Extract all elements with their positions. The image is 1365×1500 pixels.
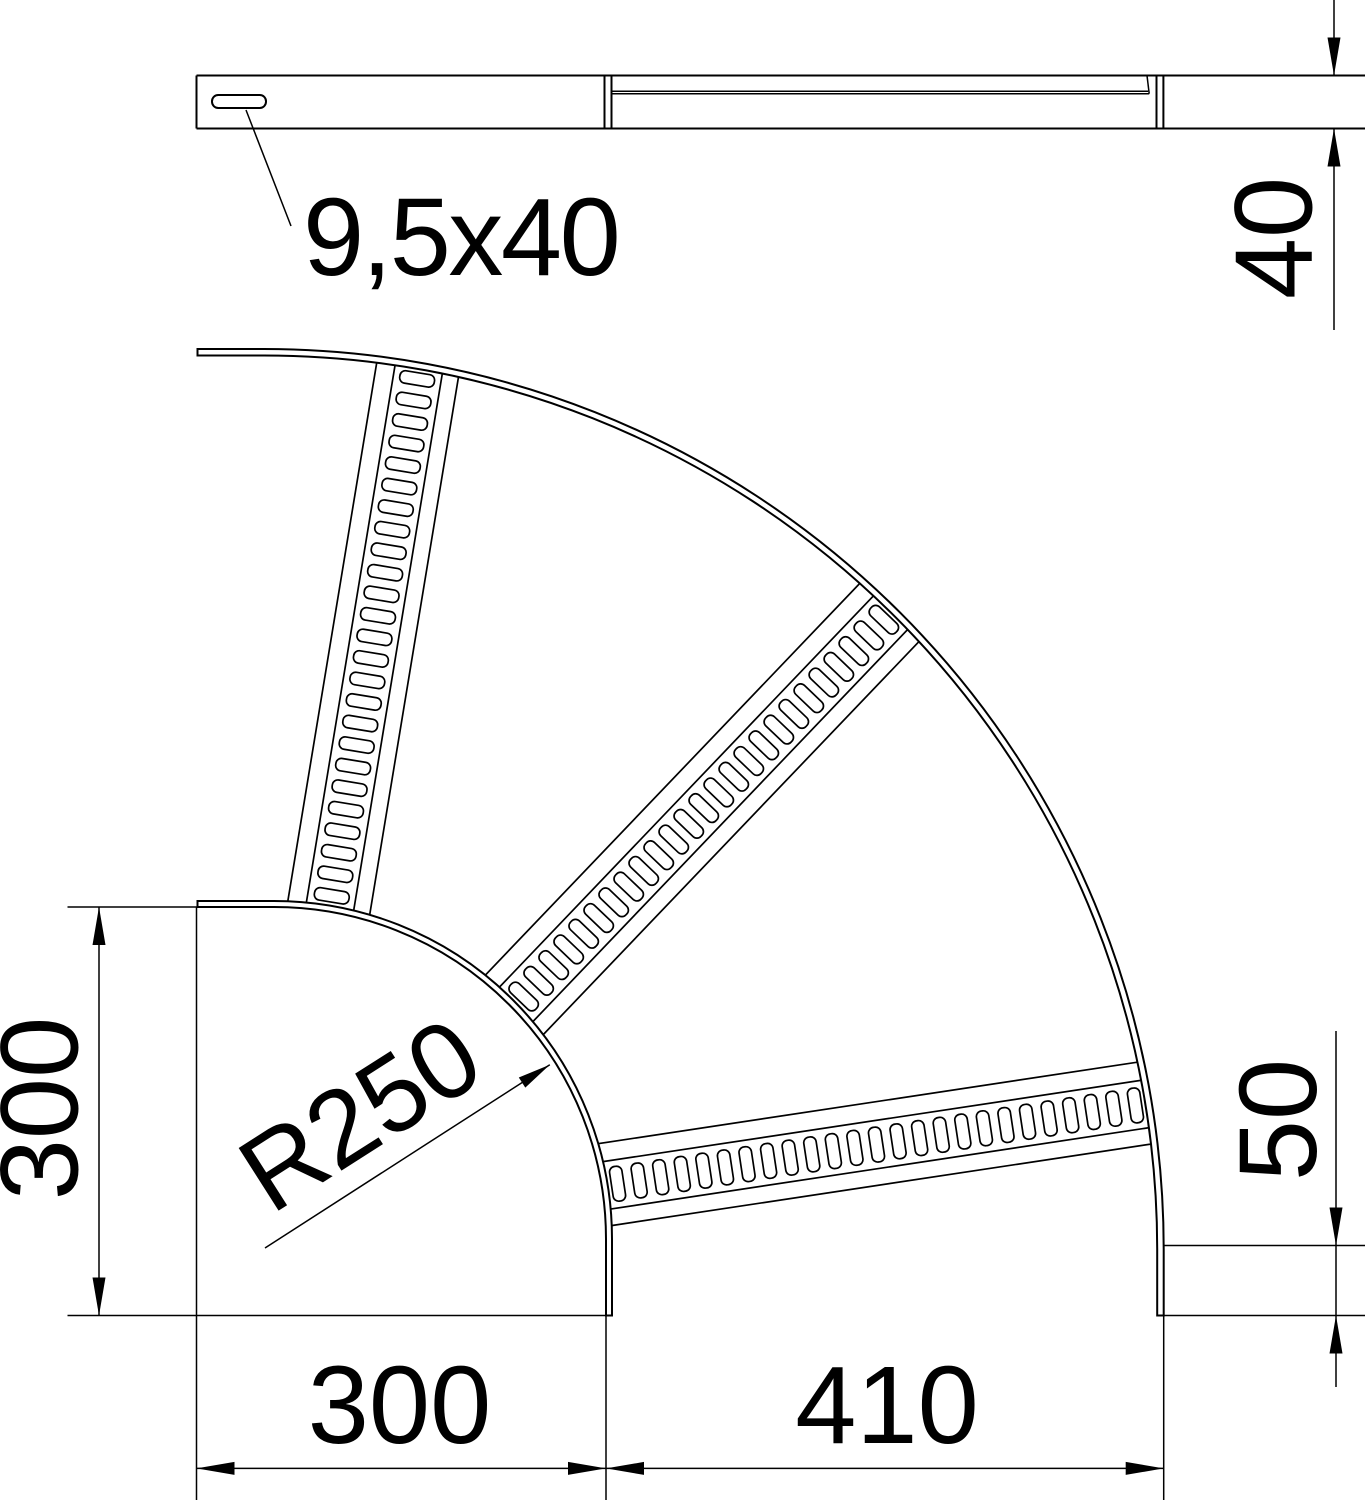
svg-text:410: 410 [795,1344,979,1467]
svg-text:300: 300 [0,1017,102,1201]
svg-text:40: 40 [1213,177,1336,299]
svg-text:9,5x40: 9,5x40 [303,176,618,299]
svg-text:50: 50 [1217,1059,1340,1181]
svg-text:300: 300 [308,1344,492,1467]
